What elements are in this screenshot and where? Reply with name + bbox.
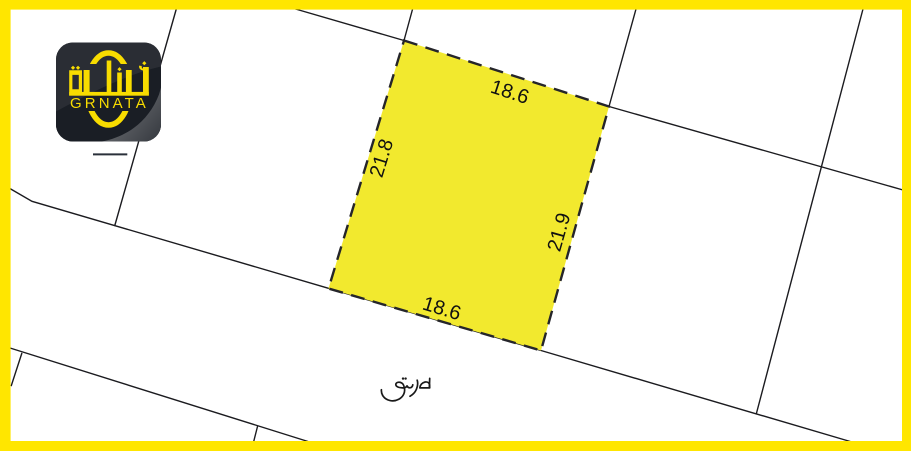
svg-text:GRNATA: GRNATA (70, 95, 149, 112)
